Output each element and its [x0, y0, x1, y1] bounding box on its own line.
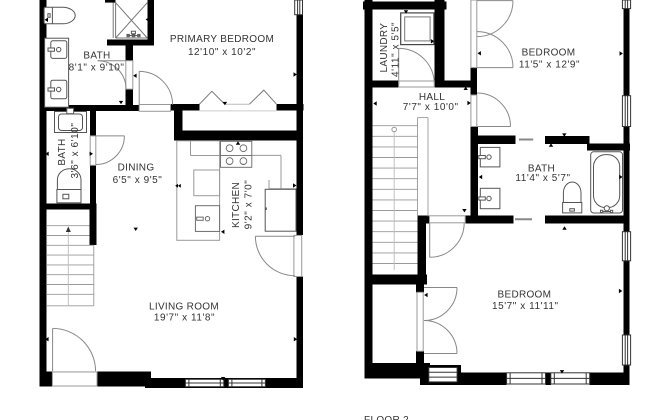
svg-text:15'7" x 11'11": 15'7" x 11'11": [492, 301, 559, 312]
svg-text:19'7" x 11'8": 19'7" x 11'8": [154, 313, 215, 324]
svg-text:BEDROOM: BEDROOM: [498, 289, 552, 300]
svg-text:LAUNDRY: LAUNDRY: [379, 23, 390, 73]
svg-text:9'2" x 7'0": 9'2" x 7'0": [244, 180, 255, 230]
svg-text:3'6" x 6'10": 3'6" x 6'10": [70, 123, 81, 179]
svg-text:DINING: DINING: [118, 163, 155, 174]
svg-text:7'7" x 10'0": 7'7" x 10'0": [403, 102, 459, 113]
svg-text:BATH: BATH: [83, 50, 110, 61]
svg-text:KITCHEN: KITCHEN: [231, 182, 242, 228]
svg-text:PRIMARY BEDROOM: PRIMARY BEDROOM: [170, 34, 274, 45]
svg-text:4'11" x 5'5": 4'11" x 5'5": [390, 22, 401, 77]
svg-text:8'1" x 9'10": 8'1" x 9'10": [69, 62, 125, 73]
svg-text:LIVING ROOM: LIVING ROOM: [149, 302, 219, 313]
svg-text:BATH: BATH: [57, 138, 68, 165]
svg-text:12'10" x 10'2": 12'10" x 10'2": [188, 47, 256, 58]
svg-text:11'4" x 5'7": 11'4" x 5'7": [515, 173, 570, 184]
svg-text:11'5" x 12'9": 11'5" x 12'9": [519, 60, 580, 71]
svg-text:FLOOR 2: FLOOR 2: [364, 415, 409, 420]
svg-text:BEDROOM: BEDROOM: [522, 48, 576, 59]
svg-text:6'5" x 9'5": 6'5" x 9'5": [113, 175, 163, 186]
